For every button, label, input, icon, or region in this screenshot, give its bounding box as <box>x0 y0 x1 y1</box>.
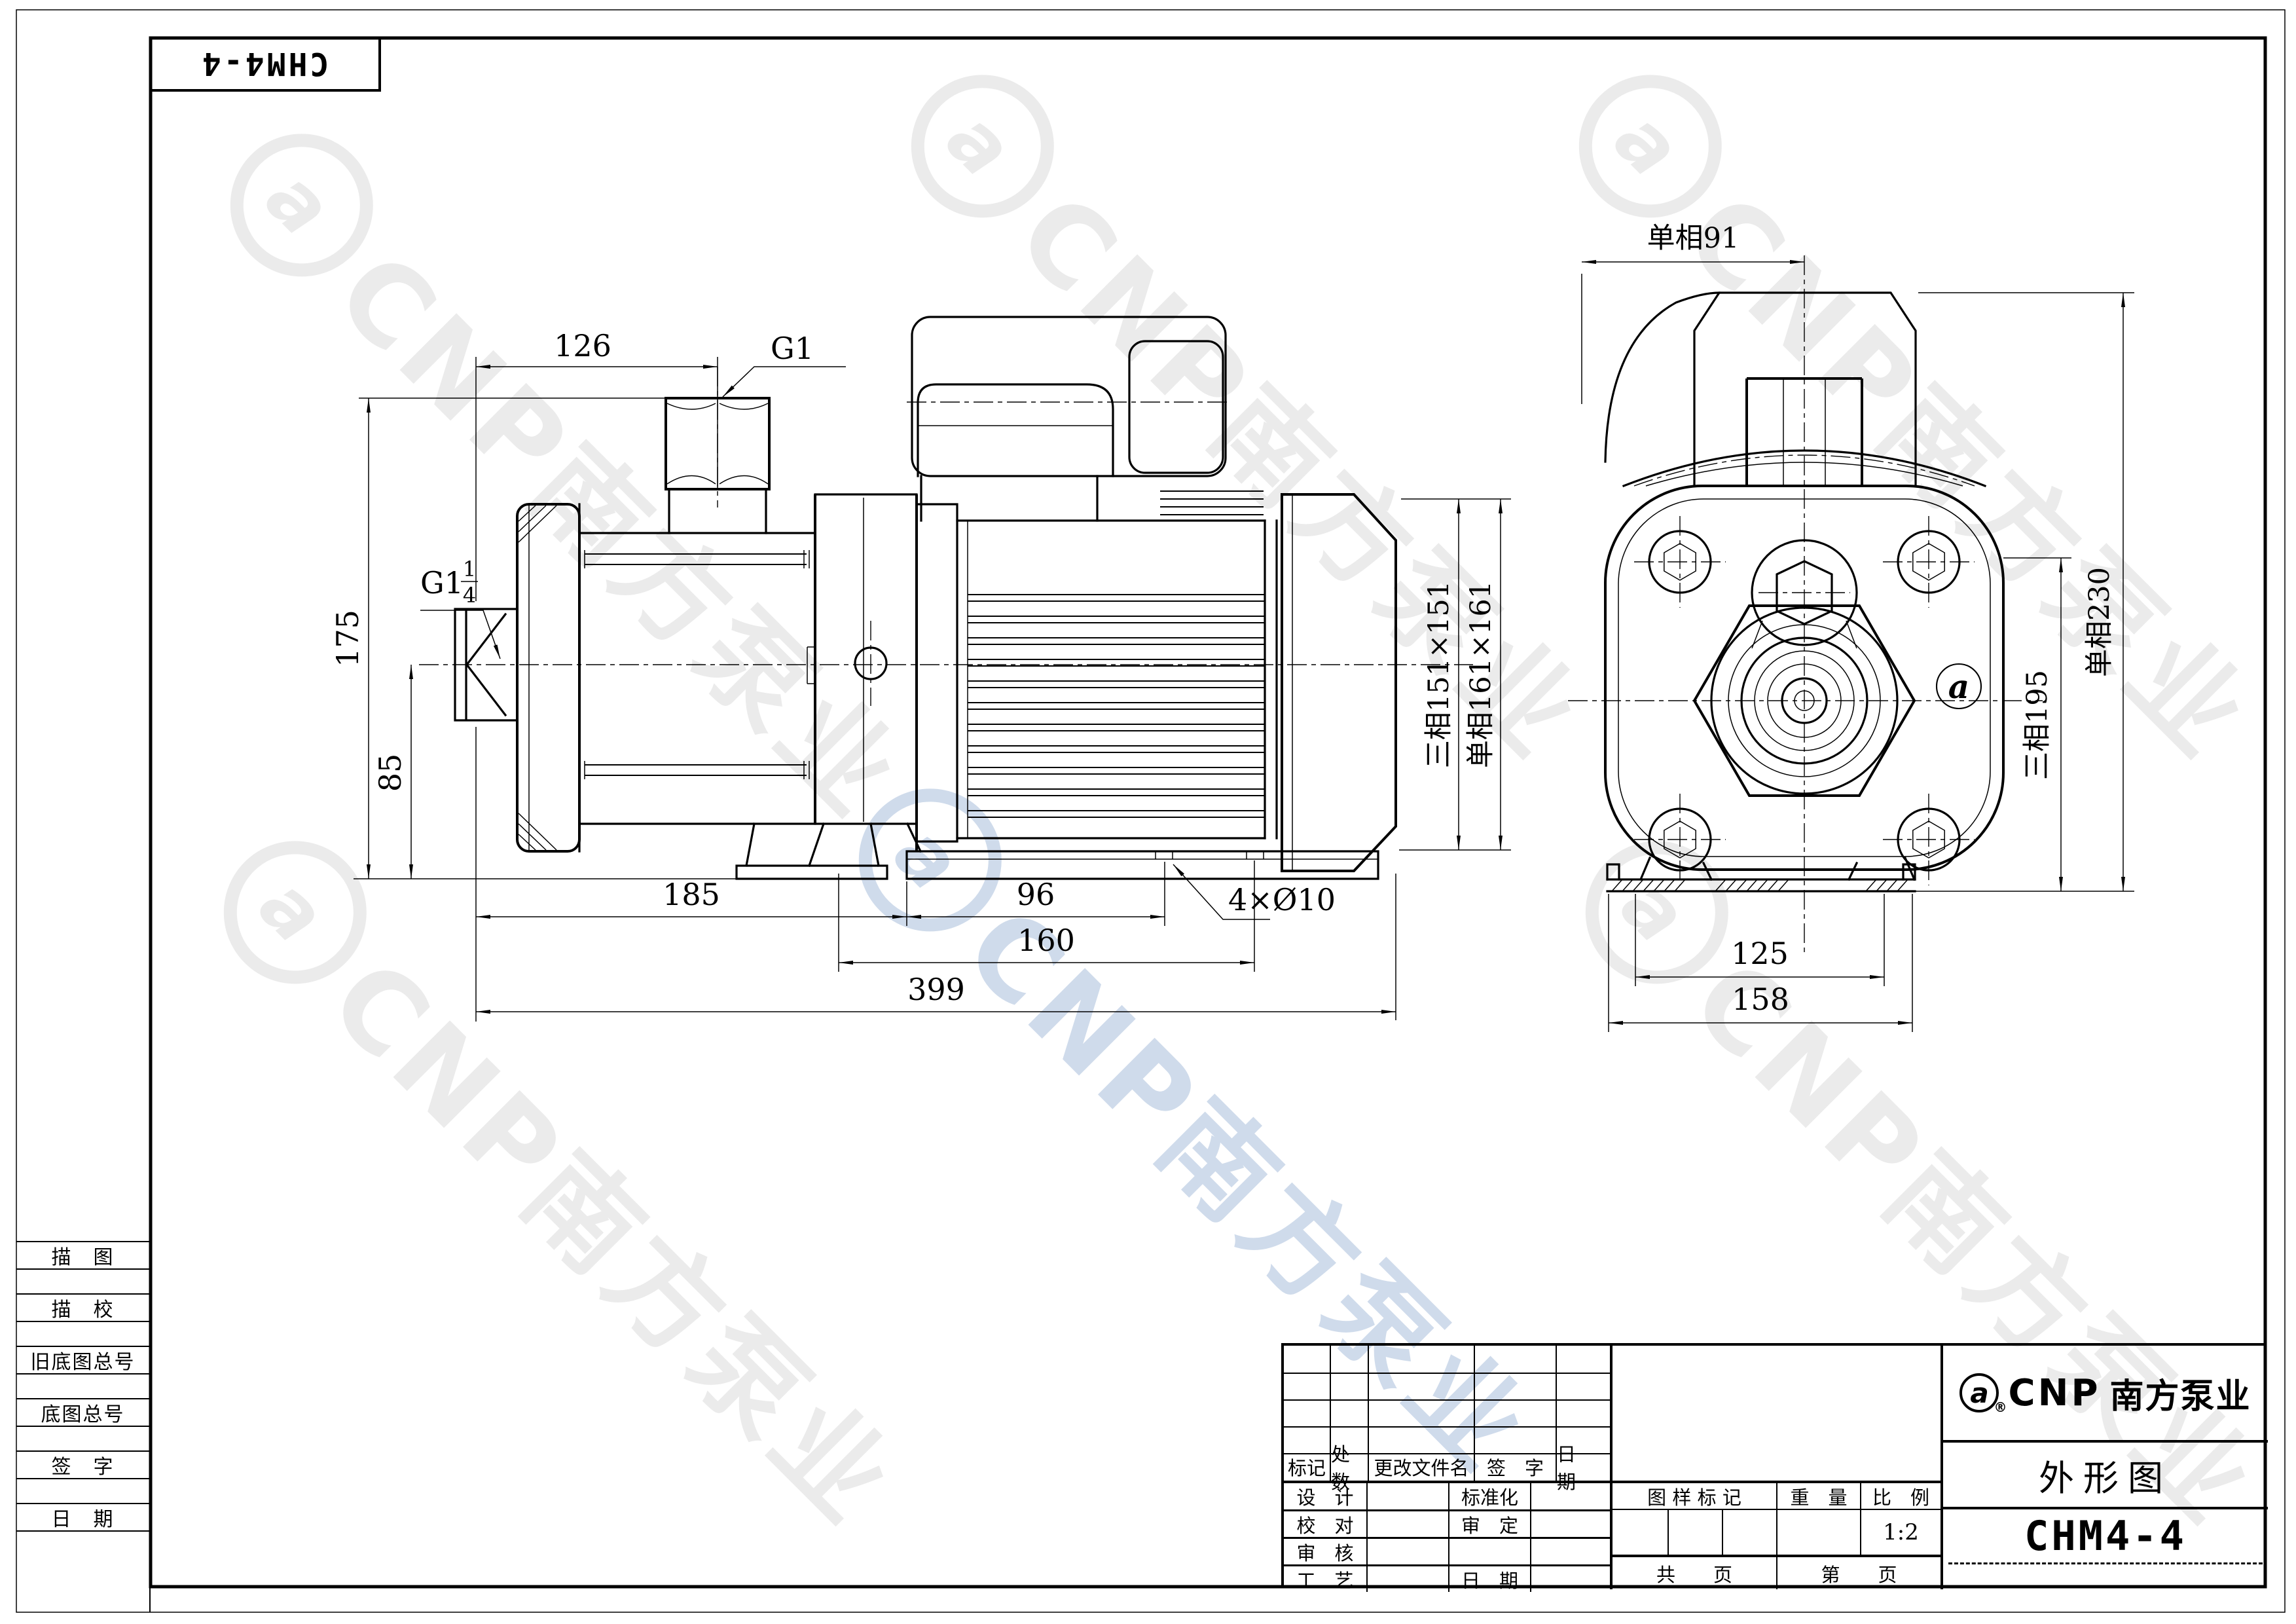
revision-header-cell: 日 期 <box>1557 1453 1610 1481</box>
dim-175: 175 <box>330 610 365 667</box>
cnp-logo-icon: a® <box>1959 1373 1999 1412</box>
end-feet <box>1607 858 1915 891</box>
stamp-header: 图 样 标 记 <box>1613 1483 1776 1509</box>
strip-label: 底图总号 <box>16 1399 149 1427</box>
strip-label: 描 校 <box>16 1295 149 1322</box>
brand-section: a® CNP 南方泵业 外形图 CHM4-4 <box>1943 1346 2268 1589</box>
revision-header-cell: 签 字 <box>1475 1453 1556 1481</box>
doc-title: 外形图 <box>1943 1443 2268 1507</box>
end-view: a <box>1568 255 2043 956</box>
drawing-sheet: a CNP南方泵业 a CNP南方泵业 a CNP南方泵业 a CNP南方泵业 … <box>0 0 2296 1624</box>
motor <box>917 491 1277 841</box>
dim-96: 96 <box>1017 877 1055 912</box>
strip-label: 旧底图总号 <box>16 1347 149 1375</box>
dim-mounting-holes: 4×Ø10 <box>1228 882 1336 917</box>
pump-foot <box>737 824 887 879</box>
dim-3phase-frame: 三相151×151 <box>1423 581 1455 768</box>
sig-label: 标准化 <box>1449 1483 1530 1509</box>
sig-label: 日 期 <box>1449 1566 1530 1592</box>
strip-blank <box>16 1479 149 1504</box>
dim-1phase-height: 单相230 <box>2083 567 2116 677</box>
side-view-dimensions: 126 G1 G1 1 4 175 85 185 96 160 399 4×Ø1… <box>330 328 1511 1022</box>
sheet-model-text: CHM4-4 <box>200 45 329 82</box>
fan-cover <box>1282 494 1396 871</box>
dim-160: 160 <box>1017 923 1075 958</box>
brand-name: 南方泵业 <box>2110 1369 2251 1418</box>
strip-blank <box>16 1532 149 1612</box>
label-g1: G1 <box>771 331 814 366</box>
doc-model: CHM4-4 <box>1943 1509 2268 1562</box>
revision-header-cell: 更改文件名 <box>1369 1453 1474 1481</box>
strip-blank <box>16 1270 149 1295</box>
brand-cnp: CNP <box>2008 1372 2100 1414</box>
page-number: 第 页 <box>1777 1557 1941 1589</box>
title-block: 标记 处数 更改文件名 签 字 日 期 设 计 标准化 校 对 审 定 审 核 … <box>1281 1343 2265 1587</box>
brand-row: a® CNP 南方泵业 <box>1943 1346 2268 1440</box>
sig-label: 审 定 <box>1449 1511 1530 1537</box>
dim-1phase-frame: 单相161×161 <box>1465 581 1497 768</box>
scale-value: 1:2 <box>1861 1510 1941 1555</box>
dim-126: 126 <box>554 328 611 363</box>
label-g1-quarter: G1 <box>420 565 464 600</box>
revision-header-cell: 处数 <box>1331 1453 1368 1481</box>
end-view-dimensions: 单相91 三相195 单相230 125 158 <box>1582 222 2134 1032</box>
g1-quarter-den: 4 <box>463 583 476 608</box>
weight-header: 重 量 <box>1777 1483 1860 1509</box>
revision-header-cell: 标记 <box>1284 1453 1330 1481</box>
dim-1phase-width: 单相91 <box>1647 222 1740 255</box>
sig-label: 工 艺 <box>1284 1566 1366 1592</box>
margin-strip: 描 图 描 校 旧底图总号 底图总号 签 字 日 期 <box>16 1241 151 1612</box>
stamp-section: 图 样 标 记 重 量 比 例 1:2 共 页 第 页 <box>1613 1346 1941 1589</box>
strip-blank <box>16 1322 149 1347</box>
terminal-box <box>907 317 1231 521</box>
dim-125: 125 <box>1731 936 1789 971</box>
side-view <box>354 317 1473 879</box>
end-terminal-box <box>1605 293 1916 486</box>
revision-table: 标记 处数 更改文件名 签 字 日 期 <box>1284 1346 1610 1481</box>
dim-399: 399 <box>907 972 965 1007</box>
pump-end-cap <box>517 504 579 851</box>
dim-158: 158 <box>1732 982 1789 1017</box>
casing-logo: a <box>1937 664 1981 709</box>
strip-blank <box>16 1375 149 1399</box>
sheet-model-box: CHM4-4 <box>151 38 381 92</box>
signature-table: 设 计 标准化 校 对 审 定 审 核 工 艺 日 期 <box>1284 1481 1610 1589</box>
g1-quarter-num: 1 <box>463 557 476 581</box>
dim-185: 185 <box>663 877 720 912</box>
pump-barrel <box>579 504 815 851</box>
pump-bracket <box>807 494 920 866</box>
strip-label: 日 期 <box>16 1504 149 1532</box>
sig-label: 设 计 <box>1284 1483 1366 1509</box>
sig-label: 审 核 <box>1284 1539 1366 1564</box>
divider-dashed <box>1948 1562 2263 1564</box>
casing-logo-letter: a <box>1948 667 1969 706</box>
dim-3phase-height: 三相195 <box>2021 670 2054 780</box>
strip-blank <box>16 1427 149 1452</box>
strip-label: 签 字 <box>16 1452 149 1479</box>
sig-label: 校 对 <box>1284 1511 1366 1537</box>
sig-label <box>1449 1539 1530 1564</box>
strip-label: 描 图 <box>16 1242 149 1270</box>
registered-mark: ® <box>1994 1399 2007 1415</box>
scale-header: 比 例 <box>1861 1483 1941 1509</box>
dim-85: 85 <box>373 754 408 792</box>
pages-total: 共 页 <box>1613 1557 1776 1589</box>
